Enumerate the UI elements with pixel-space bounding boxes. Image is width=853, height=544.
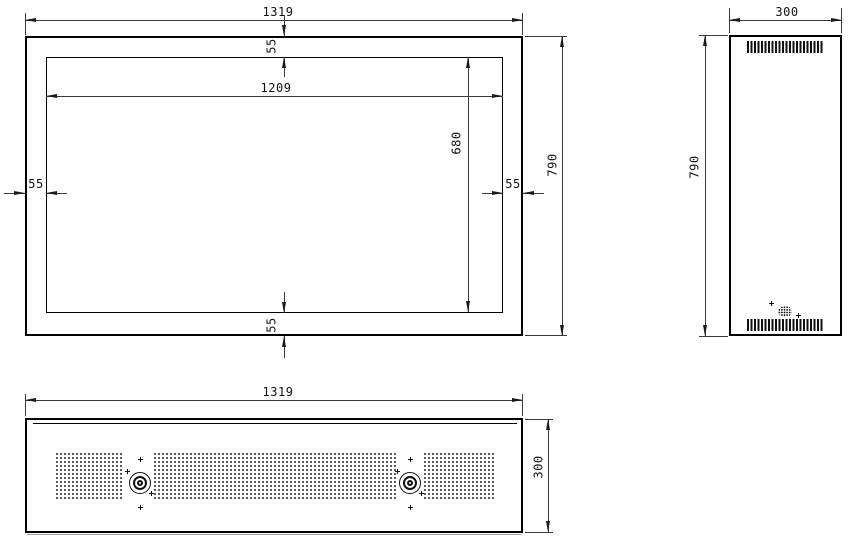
cross-mark [408,457,413,462]
dim-line [548,419,549,532]
cross-mark [408,505,413,510]
dim-arrow [546,419,550,430]
dim-arrow [512,398,523,402]
perforation-left [55,452,122,500]
cross-mark [419,491,424,496]
bottom-view: 1319 300 [0,0,853,544]
dim-label-bottom-depth: 300 [533,455,546,478]
cross-mark [149,491,154,496]
dim-arrow [546,521,550,532]
dim-label-bottom-width: 1319 [263,386,294,399]
extension-line [525,532,553,533]
cable-gland-left-inner [137,480,143,486]
bottom-seam-line [33,423,517,424]
cross-mark [125,469,130,474]
dim-line [25,400,523,401]
cable-gland-right-inner [407,480,413,486]
cross-mark [395,469,400,474]
engineering-drawing-canvas: 1319 55 1209 680 55 55 79 [0,0,853,544]
cross-mark [138,505,143,510]
dim-arrow [25,398,36,402]
perforation-right [423,452,494,500]
bottom-shadow-line [27,534,521,535]
perforation-middle [153,452,398,500]
cross-mark [138,457,143,462]
